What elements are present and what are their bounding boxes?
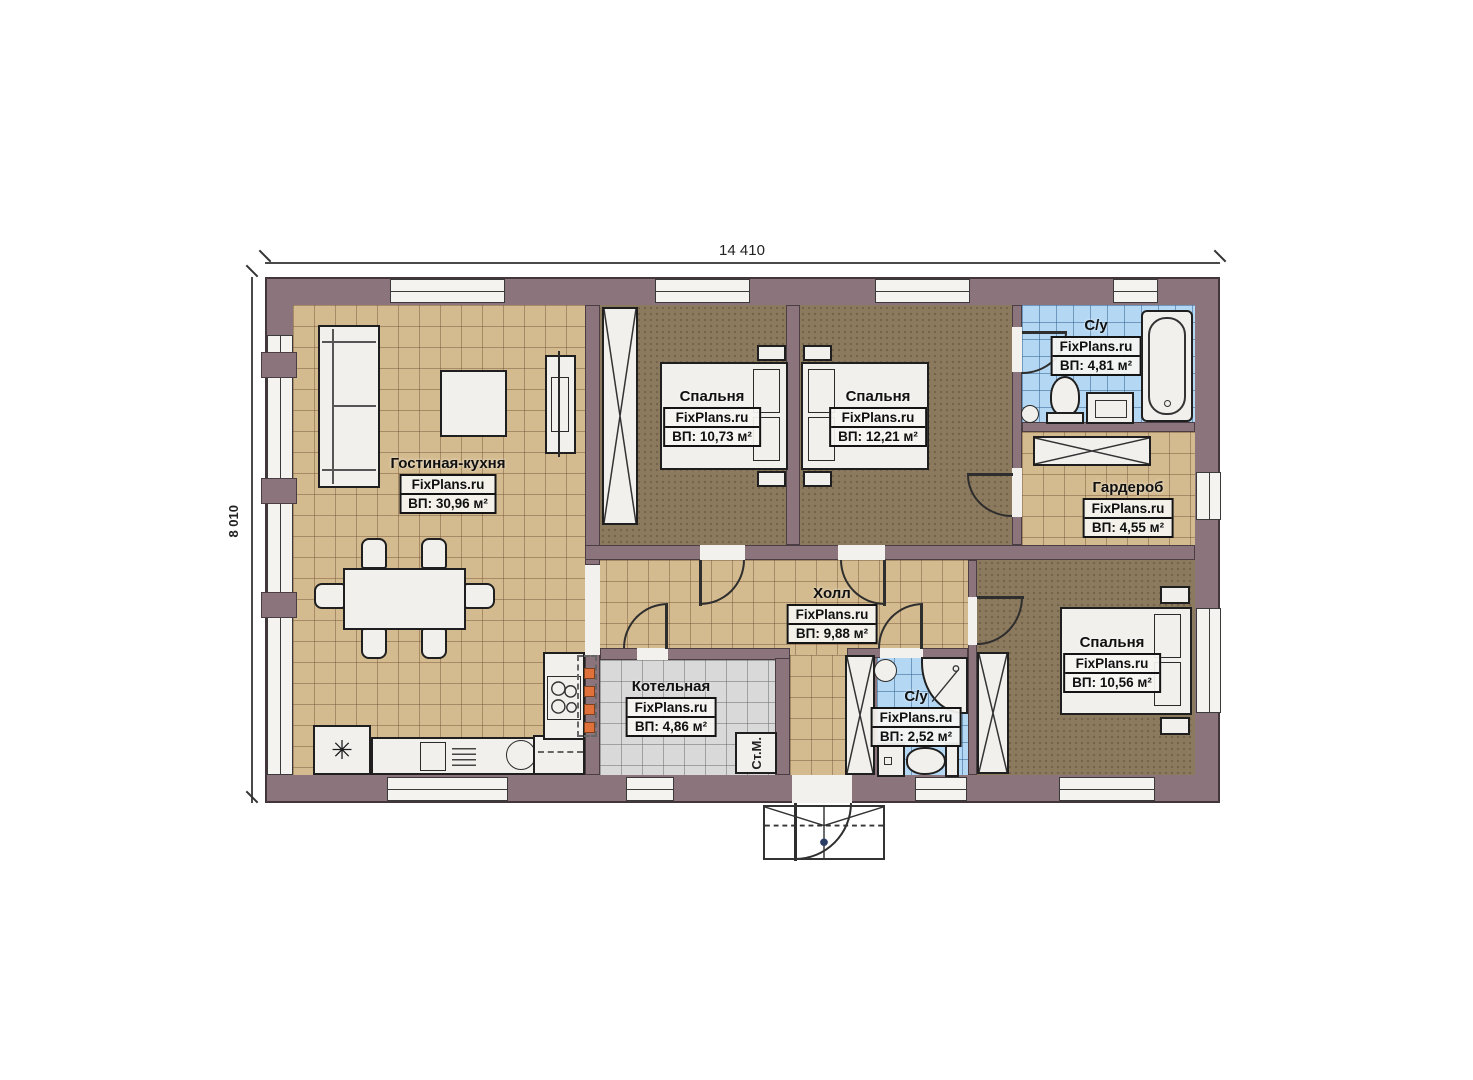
floor-plan-canvas: 14 410 8 010	[0, 0, 1473, 1080]
window-mullion	[261, 592, 297, 618]
floor-drain-icon	[1021, 405, 1039, 423]
window-right-bedroom3	[1196, 608, 1221, 713]
sofa-armrest-line	[322, 469, 376, 471]
room-name: Гостиная-кухня	[391, 455, 506, 472]
room-area: ВП: 12,21 м²	[831, 428, 925, 445]
watermark: FixPlans.ru	[401, 476, 495, 495]
tv-unit	[551, 377, 569, 432]
watermark: FixPlans.ru	[873, 709, 960, 728]
wall-boiler-east	[775, 658, 790, 775]
x-pattern-icon	[1035, 438, 1149, 464]
kitchen-corner-counter	[533, 735, 585, 775]
watermark: FixPlans.ru	[831, 409, 925, 428]
door-leaf-bedroom1	[699, 560, 702, 606]
window-right-wardrobe	[1196, 472, 1221, 520]
room-label-living-kitchen: Гостиная-кухня FixPlans.ru ВП: 30,96 м²	[391, 455, 506, 514]
dimension-height-label: 8 010	[226, 505, 241, 538]
coffee-table	[440, 370, 507, 437]
wall-living-bedroom1	[585, 305, 600, 565]
room-label-hall: Холл FixPlans.ru ВП: 9,88 м²	[787, 585, 878, 644]
window-bottom-bedroom3	[1059, 777, 1155, 801]
entrance-porch	[763, 805, 885, 860]
opening-bathroom2	[880, 648, 923, 658]
dimension-tick-icon	[259, 250, 272, 263]
room-info-box: FixPlans.ru ВП: 4,55 м²	[1083, 498, 1174, 538]
dining-chair	[421, 628, 447, 659]
x-pattern-icon	[979, 654, 1007, 772]
room-info-box: FixPlans.ru ВП: 12,21 м²	[829, 407, 927, 447]
outlet-icon	[584, 722, 595, 733]
sofa	[318, 325, 380, 488]
room-label-wardrobe: Гардероб FixPlans.ru ВП: 4,55 м²	[1083, 479, 1174, 538]
washing-machine-label: Ст.М.	[749, 737, 764, 770]
toilet-bathroom2	[906, 747, 946, 775]
opening-bedroom2	[838, 545, 885, 560]
window-left-panoramic	[267, 335, 293, 775]
room-info-box: FixPlans.ru ВП: 10,73 м²	[663, 407, 761, 447]
watermark: FixPlans.ru	[789, 606, 876, 625]
dining-chair	[421, 538, 447, 569]
opening-entrance	[792, 775, 852, 803]
closet-wardrobe-cabinet	[1033, 436, 1151, 466]
room-area: ВП: 4,86 м²	[628, 718, 715, 735]
room-name: Гардероб	[1083, 479, 1174, 496]
window-mullion	[261, 352, 297, 378]
wall-boiler-north	[600, 648, 790, 660]
nightstand	[803, 345, 832, 361]
watermark: FixPlans.ru	[628, 699, 715, 718]
window-top-bedroom2	[875, 279, 970, 303]
closet-bedroom1	[602, 307, 638, 525]
nightstand	[757, 471, 786, 487]
wall-bedroom1-bedroom2	[786, 305, 800, 545]
room-label-bedroom1: Спальня FixPlans.ru ВП: 10,73 м²	[663, 388, 761, 447]
nightstand	[757, 345, 786, 361]
door-leaf-bedroom2	[883, 560, 886, 606]
closet-bedroom3	[977, 652, 1009, 774]
room-label-bedroom3: Спальня FixPlans.ru ВП: 10,56 м²	[1063, 634, 1161, 693]
window-top-bathroom1	[1113, 279, 1158, 303]
room-name: Холл	[787, 585, 878, 602]
window-bottom-bathroom2	[915, 777, 967, 801]
room-area: ВП: 30,96 м²	[401, 495, 495, 512]
room-info-box: FixPlans.ru ВП: 9,88 м²	[787, 604, 878, 644]
dining-table	[343, 568, 466, 630]
room-area: ВП: 4,81 м²	[1053, 357, 1140, 374]
room-area: ВП: 4,55 м²	[1085, 519, 1172, 536]
dining-chair	[314, 583, 345, 609]
watermark: FixPlans.ru	[1085, 500, 1172, 519]
window-top-living	[390, 279, 505, 303]
dining-chair	[361, 628, 387, 659]
cooktop	[547, 676, 581, 720]
door-leaf-wardrobe	[967, 473, 1013, 476]
room-area: ВП: 10,56 м²	[1065, 674, 1159, 691]
outlet-icon	[584, 704, 595, 715]
toilet-tank	[1046, 412, 1084, 424]
room-area: ВП: 10,73 м²	[665, 428, 759, 445]
watermark: FixPlans.ru	[665, 409, 759, 428]
nightstand	[1160, 717, 1190, 735]
window-bottom-boiler	[626, 777, 674, 801]
opening-bedroom3	[968, 597, 977, 645]
vanity-sink	[1086, 392, 1134, 424]
dimension-width-label: 14 410	[719, 242, 765, 259]
tv-screen-line	[558, 351, 560, 457]
dining-chair	[464, 583, 495, 609]
room-label-boiler: Котельная FixPlans.ru ВП: 4,86 м²	[626, 678, 717, 737]
nightstand	[1160, 586, 1190, 604]
sink-bathroom2	[874, 659, 897, 682]
door-leaf-bedroom3	[977, 596, 1024, 599]
nightstand	[803, 471, 832, 487]
toilet-tank	[945, 743, 959, 777]
room-info-box: FixPlans.ru ВП: 4,86 м²	[626, 697, 717, 737]
opening-living-hall	[585, 565, 600, 655]
toilet-bathroom1	[1050, 376, 1080, 416]
sink-basin	[1095, 400, 1127, 418]
floor-hall-vestibule	[790, 655, 847, 775]
room-label-bathroom2: С/у FixPlans.ru ВП: 2,52 м²	[871, 688, 962, 747]
bathtub	[1141, 310, 1193, 422]
opening-boiler	[637, 648, 668, 660]
x-pattern-icon	[847, 657, 873, 773]
fridge: ✳	[313, 725, 371, 775]
room-label-bedroom2: Спальня FixPlans.ru ВП: 12,21 м²	[829, 388, 927, 447]
room-name: С/у	[1051, 317, 1142, 334]
sofa-cushion-line	[332, 405, 376, 407]
watermark: FixPlans.ru	[1053, 338, 1140, 357]
drying-rack	[452, 744, 476, 770]
room-info-box: FixPlans.ru ВП: 10,56 м²	[1063, 653, 1161, 693]
room-name: С/у	[871, 688, 962, 705]
opening-wardrobe	[1012, 468, 1022, 517]
room-info-box: FixPlans.ru ВП: 30,96 м²	[399, 474, 497, 514]
opening-bedroom1	[700, 545, 745, 560]
washing-machine: Ст.М.	[735, 732, 777, 774]
oven	[420, 742, 446, 771]
room-info-box: FixPlans.ru ВП: 2,52 м²	[871, 707, 962, 747]
x-pattern-icon	[604, 309, 636, 523]
room-name: Спальня	[663, 388, 761, 405]
dimension-line-left	[251, 277, 253, 803]
outlet-icon	[584, 668, 595, 679]
window-top-bedroom1	[655, 279, 750, 303]
dining-chair	[361, 538, 387, 569]
burners-icon	[548, 677, 580, 719]
room-name: Спальня	[1063, 634, 1161, 651]
room-area: ВП: 2,52 м²	[873, 728, 960, 745]
porch-steps-icon	[765, 807, 883, 858]
drain-icon	[1164, 400, 1171, 407]
room-name: Спальня	[829, 388, 927, 405]
room-area: ВП: 9,88 м²	[789, 625, 876, 642]
watermark: FixPlans.ru	[1065, 655, 1159, 674]
room-label-bathroom1: С/у FixPlans.ru ВП: 4,81 м²	[1051, 317, 1142, 376]
door-leaf-bathroom2	[920, 604, 923, 649]
window-bottom-kitchen	[387, 777, 508, 801]
wall-hall-north	[585, 545, 1195, 560]
opening-bathroom1	[1012, 327, 1022, 372]
wall-bedroom3-west	[968, 560, 977, 775]
upper-cabinet-dashed-line	[538, 751, 583, 753]
dimension-tick-icon	[1214, 250, 1227, 263]
room-name: Котельная	[626, 678, 717, 695]
room-info-box: FixPlans.ru ВП: 4,81 м²	[1051, 336, 1142, 376]
outlet-icon	[584, 686, 595, 697]
door-leaf-boiler	[665, 604, 668, 649]
window-mullion	[261, 478, 297, 504]
sofa-armrest-line	[322, 341, 376, 343]
cabinet-handle-icon	[884, 757, 892, 765]
snowflake-icon: ✳	[331, 737, 353, 763]
dimension-line-top	[265, 262, 1220, 264]
bathroom-cabinet	[877, 743, 905, 777]
dimension-tick-icon	[246, 265, 259, 278]
kitchen-sink	[506, 740, 536, 770]
